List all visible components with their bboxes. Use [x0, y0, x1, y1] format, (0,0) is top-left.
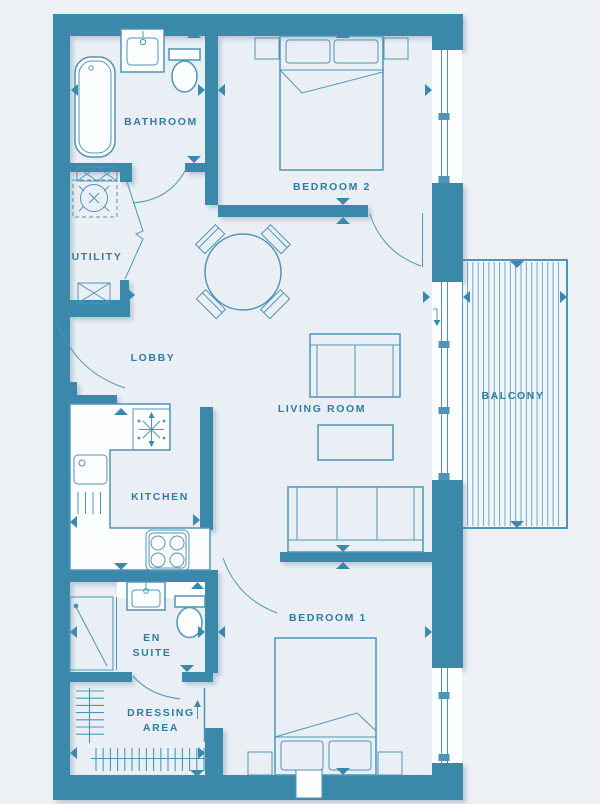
entrance-door-jamb [53, 382, 77, 395]
wall-niche [296, 770, 322, 798]
bath [75, 57, 115, 157]
bedroom1-label: BEDROOM 1 [289, 612, 367, 624]
wall-exterior-right-mid [432, 183, 463, 282]
wall-bedroom1-north [280, 552, 432, 562]
utility-label: UTILITY [72, 251, 123, 263]
bathroom-label: BATHROOM [124, 116, 198, 128]
ensuite-sink [127, 582, 165, 610]
floor-plan-page: BATHROOM UTILITY LOBBY KITCHEN LIVING RO… [0, 0, 600, 804]
wall-bathroom-south-east [185, 163, 218, 172]
wall-bedroom2-south [218, 205, 368, 217]
living-room-label: LIVING ROOM [278, 403, 366, 415]
bathroom-toilet [169, 49, 200, 92]
kitchen-label: KITCHEN [131, 491, 189, 503]
dressing-area-label-line2: AREA [143, 722, 179, 734]
wall-dressing-bedroom1 [205, 728, 223, 778]
wall-exterior-right-lower [432, 480, 463, 668]
balcony-label: BALCONY [481, 390, 544, 402]
wall-kitchen-south [53, 570, 218, 582]
en-suite-label-line2: SUITE [133, 647, 172, 659]
wall-bathroom-bedroom2 [205, 36, 218, 205]
wall-utility-jamb-top [120, 163, 132, 182]
bedroom2-label: BEDROOM 2 [293, 181, 371, 193]
wall-exterior-bottom [53, 775, 463, 800]
wall-ensuite-south-west [53, 672, 132, 682]
wall-kitchen-east [200, 407, 213, 530]
wall-ensuite-east [205, 582, 218, 673]
floor-plan: BATHROOM UTILITY LOBBY KITCHEN LIVING RO… [0, 0, 600, 804]
wall-exterior-right-corner [432, 763, 463, 800]
wall-ensuite-south-east [182, 672, 213, 682]
en-suite-label-line1: EN [143, 632, 161, 644]
wall-exterior-left [53, 14, 70, 800]
bathroom-sink [121, 29, 164, 72]
wall-exterior-right-top [432, 14, 463, 50]
lobby-label: LOBBY [131, 352, 176, 364]
wall-kitchen-north [53, 395, 117, 404]
wall-exterior-top [53, 14, 463, 36]
dressing-area-label-line1: DRESSING [127, 707, 195, 719]
